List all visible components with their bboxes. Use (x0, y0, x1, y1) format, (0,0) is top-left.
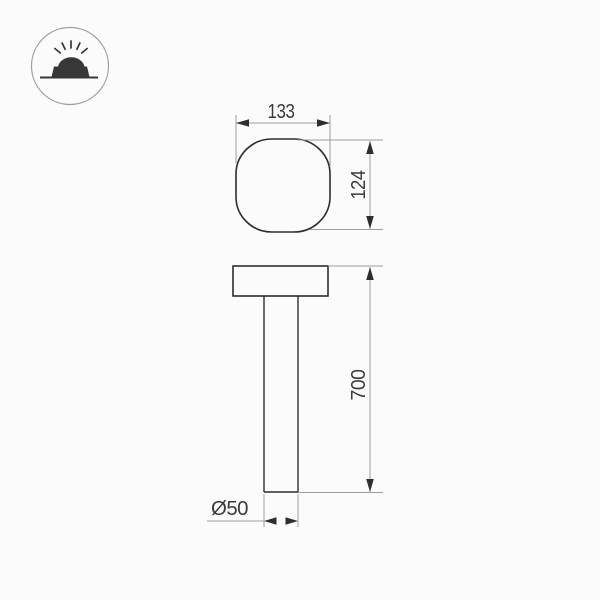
luminaire-cap-outline (233, 266, 328, 296)
dimension-head-depth: 124 (298, 140, 383, 230)
arrowhead-left-icon (236, 119, 249, 127)
dimension-drawing-page: 133 124 700 (0, 0, 600, 600)
light-dome (58, 57, 85, 66)
pole-diameter-value: Ø50 (211, 498, 248, 520)
arrowhead-up-icon (366, 141, 374, 154)
side-view (233, 266, 328, 492)
head-depth-value: 124 (348, 170, 370, 199)
arrowhead-right-icon (286, 517, 299, 524)
head-width-value: 133 (268, 101, 295, 123)
arrowhead-right-icon (317, 119, 330, 127)
recessed-ground-light-icon (32, 28, 109, 105)
light-rays-icon (55, 41, 87, 53)
dimension-head-width: 133 (236, 101, 330, 167)
dimension-pole-height: 700 (298, 266, 383, 493)
arrowhead-down-icon (366, 479, 374, 492)
arrowhead-left-icon (264, 517, 277, 524)
luminaire-head-top-outline (236, 139, 330, 232)
technical-drawing-canvas: 133 124 700 (0, 0, 600, 600)
arrowhead-down-icon (366, 216, 374, 229)
top-view (236, 139, 330, 232)
pole-height-value: 700 (348, 369, 370, 400)
dimension-pole-diameter: Ø50 (207, 494, 298, 527)
fixture-base (52, 67, 90, 78)
arrowhead-up-icon (366, 267, 374, 280)
